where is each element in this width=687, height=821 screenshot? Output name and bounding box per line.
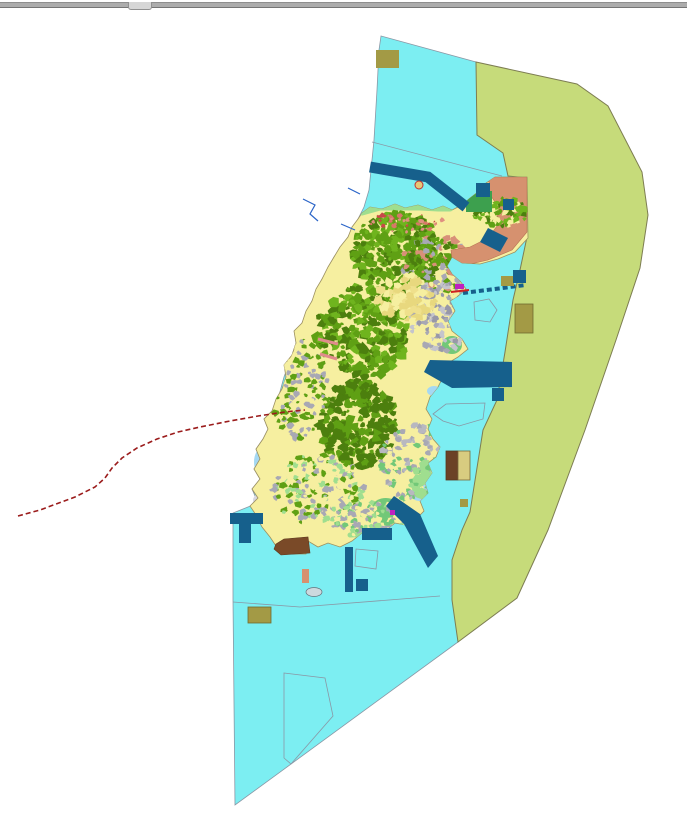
panel-drag-handle[interactable]	[128, 2, 152, 10]
parcel-blob	[275, 369, 282, 375]
feature-khaki-block-ne[interactable]	[501, 276, 514, 286]
feature-navy-pier-south[interactable]	[345, 547, 353, 592]
feature-facility-block-right[interactable]	[458, 451, 470, 480]
feature-navy-square-ne2[interactable]	[503, 199, 514, 210]
stream-nw-2	[348, 188, 360, 194]
map-canvas[interactable]	[0, 0, 687, 821]
feature-navy-quay-sw-1[interactable]	[230, 513, 263, 524]
parcel-blob	[284, 347, 289, 351]
window-top-bar	[0, 2, 687, 8]
mark-ferry-terminal-mark	[455, 284, 464, 289]
feature-facility-block-left[interactable]	[446, 451, 458, 480]
feature-khaki-block-south[interactable]	[248, 607, 271, 623]
parcel-blob	[284, 344, 289, 347]
parcel-blob	[278, 367, 284, 372]
app-viewport	[0, 0, 687, 821]
feature-salmon-bar-sw[interactable]	[302, 569, 309, 583]
feature-khaki-dot-se[interactable]	[460, 499, 468, 507]
parcel-blob	[286, 345, 291, 350]
mark-magenta-dot-south	[390, 510, 395, 515]
feature-navy-quay-sw-2[interactable]	[239, 524, 251, 543]
feature-navy-square-ne1[interactable]	[476, 183, 490, 197]
parcel-blob	[406, 224, 409, 227]
parcel-blob	[272, 384, 280, 391]
feature-khaki-block-north[interactable]	[376, 50, 399, 68]
parcel-blob	[277, 367, 282, 371]
feature-navy-square-e1[interactable]	[513, 270, 526, 283]
feature-navy-bar-south2[interactable]	[362, 528, 392, 540]
parcel-blob	[272, 390, 278, 396]
stream-nw-1	[303, 199, 318, 221]
parcel-blob	[290, 339, 294, 344]
parcel-blob	[276, 376, 279, 379]
parcel-blob	[283, 345, 289, 352]
mark-buoy-mark	[415, 181, 423, 189]
islet-outline	[306, 588, 322, 597]
parcel-blob	[400, 429, 406, 434]
map-canvas-svg[interactable]	[0, 0, 687, 821]
parcel-blob	[277, 378, 283, 383]
feature-navy-square-s[interactable]	[356, 579, 368, 591]
parcel-blob	[275, 360, 280, 366]
feature-khaki-block-east[interactable]	[515, 304, 533, 333]
parcel-blob	[269, 382, 278, 388]
feature-navy-square-e2[interactable]	[492, 388, 504, 401]
parcel-blob	[272, 384, 277, 390]
